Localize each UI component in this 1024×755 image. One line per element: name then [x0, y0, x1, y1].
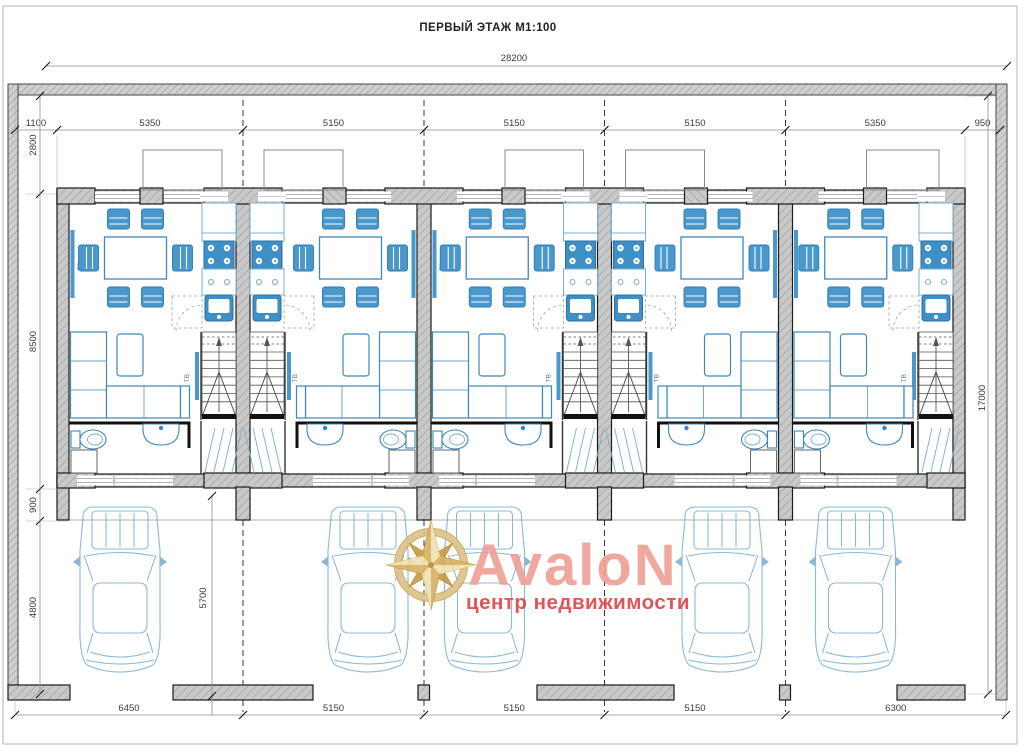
dim-label: 5350	[139, 118, 160, 129]
plan-graphics: ХОЛТВТВСМХОЛТВТВСМХОЛТВТВСМХОЛТВТВСМХОЛТ…	[3, 6, 1017, 744]
dim-label: 5150	[504, 118, 525, 129]
car-5	[810, 507, 902, 672]
dim-overall-width: 28200	[501, 53, 527, 64]
dim-label: 1100	[26, 118, 46, 129]
dim-label: 5150	[684, 703, 705, 714]
compass-icon	[386, 520, 476, 610]
dim-label: 4800	[28, 597, 39, 618]
car-4	[676, 507, 768, 672]
stair-tv-label: ТВ	[546, 374, 553, 383]
dim-label: 6300	[885, 703, 906, 714]
dim-label: 2800	[28, 134, 39, 155]
dim-label: 5150	[684, 118, 705, 129]
dim-label: 5150	[323, 118, 344, 129]
car-1	[74, 507, 166, 672]
dim-label: 6450	[118, 703, 139, 714]
car-2	[322, 507, 414, 672]
stair-tv-label: ТВ	[901, 374, 908, 383]
stair-tv-label: ТВ	[184, 374, 191, 383]
stair-tv-label: ТВ	[292, 374, 299, 383]
parking-curbs	[8, 685, 965, 700]
dim-driveway-depth: 5700	[198, 587, 209, 608]
dim-label: 5150	[504, 703, 525, 714]
stair-tv-label: ТВ	[654, 374, 661, 383]
dim-label: 5150	[323, 703, 344, 714]
dim-label: 5350	[865, 118, 886, 129]
logo-subtitle: центр недвижимости	[466, 591, 690, 614]
drawing-sheet: ХОЛТВТВСМХОЛТВТВСМХОЛТВТВСМХОЛТВТВСМХОЛТ…	[0, 0, 1024, 755]
logo: AvaloN центр недвижимости	[386, 520, 690, 614]
dim-overall-height: 17000	[977, 385, 988, 411]
logo-name: AvaloN	[468, 533, 678, 598]
page-title: ПЕРВЫЙ ЭТАЖ М1:100	[419, 21, 556, 34]
floor-plan-svg: ХОЛТВТВСМХОЛТВТВСМХОЛТВТВСМХОЛТВТВСМХОЛТ…	[0, 0, 1024, 755]
dim-label: 900	[28, 497, 39, 513]
dim-label: 8500	[28, 331, 39, 352]
